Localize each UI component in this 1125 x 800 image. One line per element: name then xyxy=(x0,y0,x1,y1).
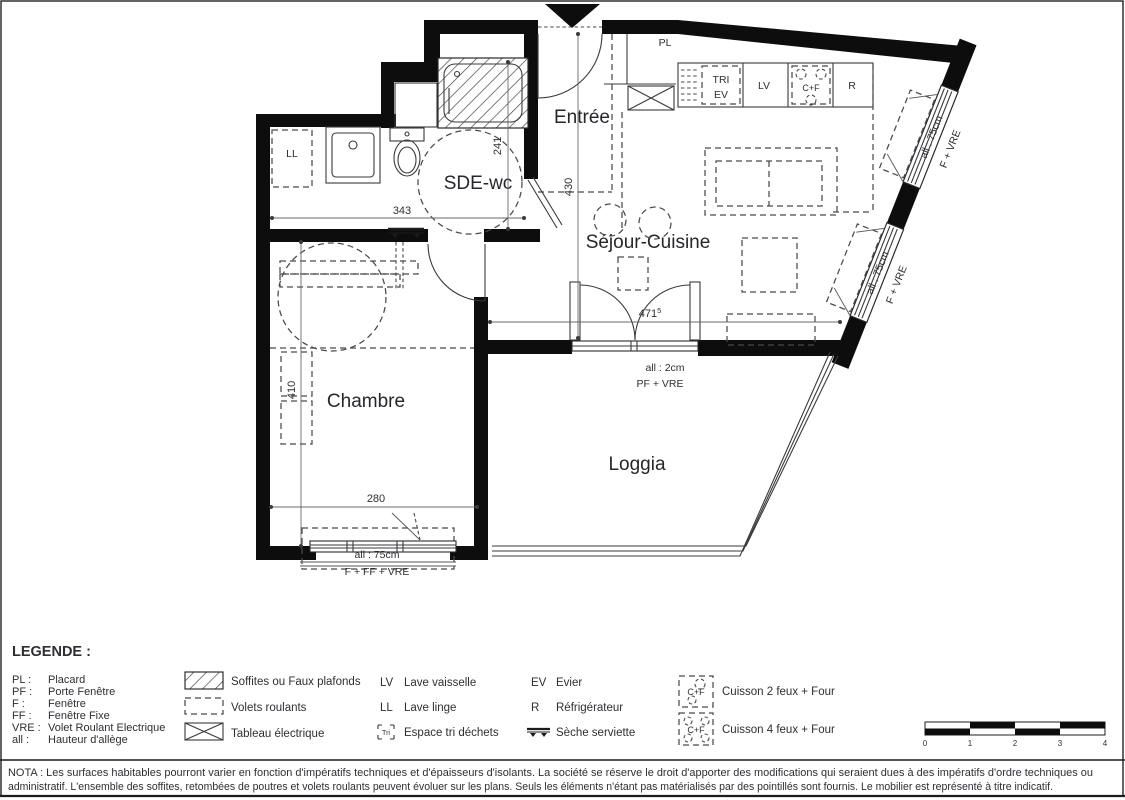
abbr-f-label: Fenêtre xyxy=(48,698,86,710)
wall-entry-stub xyxy=(484,229,540,242)
soffit-symbol-icon xyxy=(185,672,223,689)
tri-label: Espace tri déchets xyxy=(404,727,499,739)
wall-loggia-top-right xyxy=(698,340,843,356)
ev-code: EV xyxy=(531,677,547,689)
lv-label: Lave vaisselle xyxy=(404,677,476,689)
dim-410-label: 410 xyxy=(286,381,298,399)
scale-tick-4: 4 xyxy=(1103,739,1108,748)
seche-serviette-label: Sèche serviette xyxy=(556,727,635,739)
wall-left xyxy=(256,114,270,560)
wall-shaft xyxy=(381,82,394,128)
cuisson2-label: Cuisson 2 feux + Four xyxy=(722,686,835,698)
abbr-ff: FF : xyxy=(12,710,32,722)
room-label-chambre: Chambre xyxy=(327,391,405,412)
tableau-symbol-label: Tableau électrique xyxy=(231,728,324,740)
wall-lav-top xyxy=(256,114,396,127)
cuisson4-icon-text: C+F xyxy=(687,725,705,735)
scale-tick-2: 2 xyxy=(1013,739,1018,748)
lave-vaisselle-label: LV xyxy=(758,80,770,92)
scale-tick-1: 1 xyxy=(968,739,973,748)
abbr-pf-label: Porte Fenêtre xyxy=(48,686,115,698)
tri-icon-text: Tri xyxy=(382,730,390,737)
cooktop-label: C+F xyxy=(802,83,820,93)
dim-280-label: 280 xyxy=(367,493,385,505)
ev-label: EV xyxy=(714,89,728,101)
lv-code: LV xyxy=(380,677,394,689)
dim-343-label: 343 xyxy=(393,205,411,217)
lave-linge-label: LL xyxy=(286,148,298,160)
wall-chambre-bottom-left xyxy=(256,546,316,560)
ll-label: Lave linge xyxy=(404,702,456,714)
scale-tick-3: 3 xyxy=(1058,739,1063,748)
placard-label: PL xyxy=(659,37,672,49)
tri-label: TRI xyxy=(713,74,730,86)
ev-label: Evier xyxy=(556,677,582,689)
dim-430-label: 430 xyxy=(563,178,575,196)
abbr-ff-label: Fenêtre Fixe xyxy=(48,710,110,722)
abbr-vre: VRE : xyxy=(12,722,41,734)
soffit-symbol-label: Soffites ou Faux plafonds xyxy=(231,676,361,688)
room-label-entree: Entrée xyxy=(554,107,610,128)
shower xyxy=(438,58,528,128)
abbr-pf: PF : xyxy=(12,686,32,698)
volet-symbol-label: Volets roulants xyxy=(231,702,307,714)
chambre-window-sill-label: all : 75cm xyxy=(355,549,400,561)
room-label-sde: SDE-wc xyxy=(444,173,513,194)
cuisson4-label: Cuisson 4 feux + Four xyxy=(722,724,835,736)
refrigerateur-label: R xyxy=(848,80,856,92)
loggia-door-type-label: PF + VRE xyxy=(637,378,684,390)
wall-top-right xyxy=(602,20,678,34)
abbr-vre-label: Volet Roulant Electrique xyxy=(48,722,165,734)
floor-plan-sheet: all : 75cm F + VRE all : 75cm F + VRE En… xyxy=(0,0,1125,800)
wall-chambre-loggia xyxy=(474,297,488,560)
loggia-door-sill-label: all : 2cm xyxy=(645,362,684,374)
nota-line2: administratif. L'ensemble des soffites, … xyxy=(8,781,1053,793)
room-label-loggia: Loggia xyxy=(608,454,665,475)
abbr-f: F : xyxy=(12,698,25,710)
abbr-all-label: Hauteur d'allège xyxy=(48,734,128,746)
chambre-window-type-label: F + FF + VRE xyxy=(345,566,410,578)
wall-loggia-top-left xyxy=(488,340,572,354)
floor-plan-drawing: all : 75cm F + VRE all : 75cm F + VRE En… xyxy=(0,0,1125,800)
abbr-pl-label: Placard xyxy=(48,674,85,686)
legend-title: LEGENDE : xyxy=(12,644,91,660)
r-code: R xyxy=(531,702,539,714)
wall-sde-bottom xyxy=(256,229,428,242)
abbr-all: all : xyxy=(12,734,29,746)
r-label: Réfrigérateur xyxy=(556,702,623,714)
abbr-pl: PL : xyxy=(12,674,31,686)
wall-top-left xyxy=(424,20,538,34)
scale-tick-0: 0 xyxy=(923,739,928,748)
nota-line1: NOTA : Les surfaces habitables pourront … xyxy=(8,767,1093,779)
cuisson2-icon-text: C+F xyxy=(687,687,705,697)
ll-code: LL xyxy=(380,702,393,714)
dim-241-label: 241 xyxy=(492,137,504,155)
